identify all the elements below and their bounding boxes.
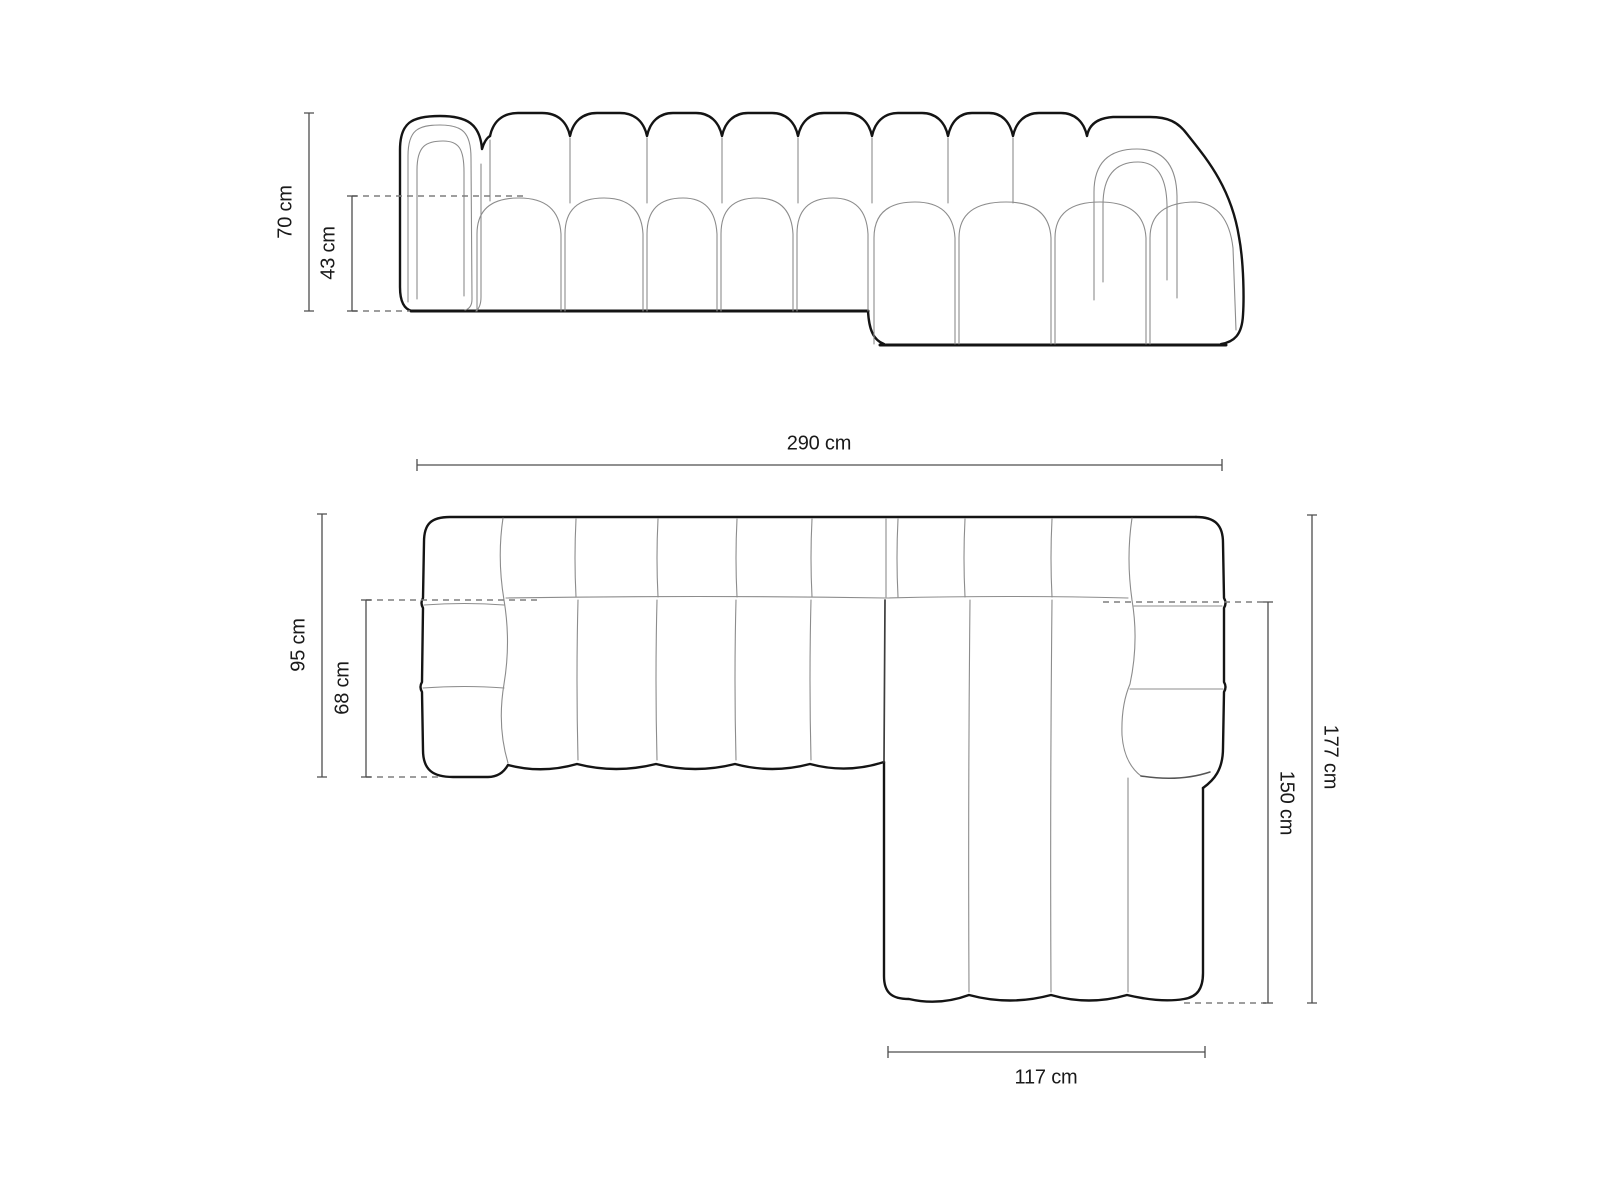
dim-label-chaise-width: 117 cm [1015,1067,1078,1090]
front-baseline-step [868,311,884,344]
dimension-line-total-width [417,459,1222,471]
front-backrest-channel-seams [490,138,1013,203]
front-view-dimensions [304,113,525,311]
top-backrest-front-edge [506,597,1128,599]
dimension-line-total-depth [1307,515,1317,1003]
front-left-armrest-inner-panels [408,125,481,311]
top-right-armrest-boundary [1122,518,1141,776]
dimension-line-chaise-width [888,1046,1205,1058]
top-left-armrest-divisions [423,604,504,689]
dimension-line-seat-depth [361,600,371,777]
top-view-drawing [421,517,1226,1002]
front-seat-height-dashed-lines [352,196,525,311]
dim-label-seat-depth: 68 cm [332,661,355,714]
front-view-drawing [400,113,1244,345]
top-right-armrest-divisions [1130,606,1223,689]
top-right-armrest-bottom-edge [1141,772,1210,778]
front-seat-cushions [477,198,868,311]
dim-label-total-width: 290 cm [787,433,851,456]
front-backrest-arches-outline [490,113,1244,344]
dim-label-total-depth: 177 cm [1319,725,1342,789]
top-chaise-channel-seams [969,600,1128,992]
top-chaise-outline [884,762,1203,1002]
dimension-line-chaise-inner-length [1263,602,1273,1003]
top-left-armrest-boundary [500,518,508,763]
dimension-line-depth [317,514,327,777]
top-body-outline [421,517,1197,777]
front-right-armrest-inner-panels [1094,149,1177,300]
sofa-diagram-svg [0,0,1600,1200]
diagram-canvas: 70 cm 43 cm 290 cm 95 cm 68 cm 150 cm 17… [0,0,1600,1200]
dim-label-front-seat-height: 43 cm [318,226,341,279]
top-right-edge-outline [1196,517,1226,788]
dim-label-depth: 95 cm [288,618,311,671]
dim-label-chaise-inner-length: 150 cm [1275,771,1298,835]
dim-label-front-height: 70 cm [275,185,298,238]
dimension-line-front-seat-height [347,196,357,311]
top-view-dimensions [317,459,1317,1058]
front-chaise-cushions [874,202,1236,344]
top-seat-channel-seams [577,600,811,760]
top-chaise-left-boundary [884,600,885,762]
top-backrest-channel-seams [575,519,1052,597]
dimension-line-front-height [304,113,314,311]
top-dashed-extension-lines [366,600,1266,1003]
